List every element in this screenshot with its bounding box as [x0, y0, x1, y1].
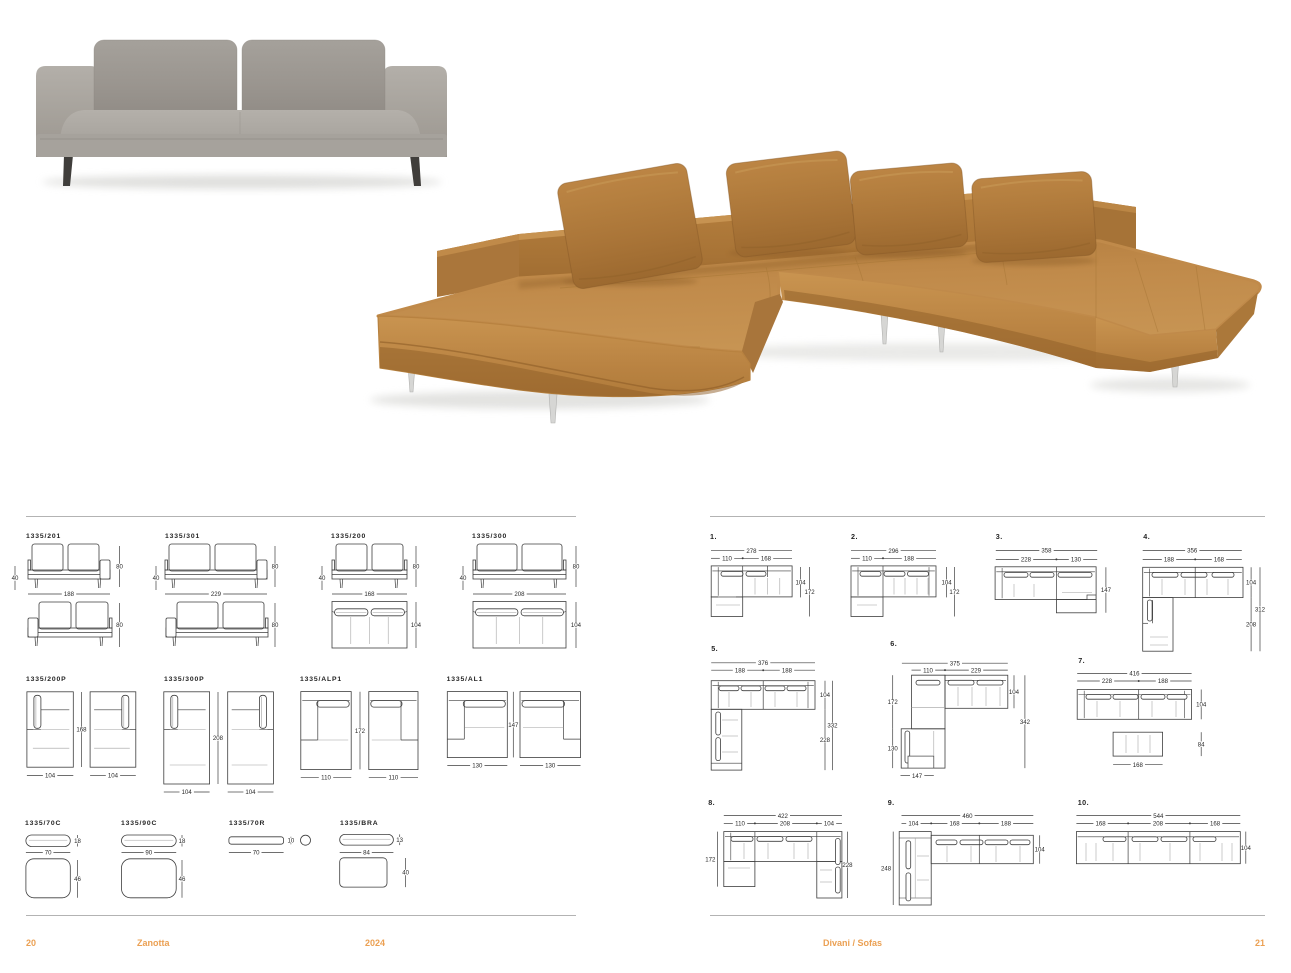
svg-text:147: 147: [912, 773, 923, 780]
svg-text:80: 80: [116, 564, 123, 571]
svg-text:168: 168: [364, 591, 375, 598]
svg-text:110: 110: [923, 667, 933, 674]
svg-text:130: 130: [472, 763, 483, 770]
svg-text:416: 416: [1129, 671, 1140, 678]
svg-text:168: 168: [1214, 557, 1225, 564]
svg-text:Zanotta: Zanotta: [137, 938, 170, 948]
svg-text:208: 208: [514, 591, 525, 598]
svg-text:1335/300P: 1335/300P: [164, 676, 205, 683]
svg-text:228: 228: [1021, 557, 1032, 564]
svg-text:80: 80: [272, 622, 279, 629]
svg-text:2.: 2.: [851, 532, 858, 541]
svg-text:104: 104: [908, 821, 919, 828]
svg-text:20: 20: [26, 938, 36, 948]
svg-text:147: 147: [1101, 587, 1112, 594]
svg-text:40: 40: [12, 575, 19, 582]
svg-text:208: 208: [780, 821, 791, 828]
svg-text:104: 104: [108, 773, 119, 780]
svg-text:188: 188: [64, 591, 75, 598]
svg-text:84: 84: [1198, 741, 1205, 748]
svg-text:1335/300: 1335/300: [472, 533, 507, 540]
svg-text:228: 228: [820, 737, 831, 744]
svg-text:6.: 6.: [890, 639, 897, 648]
svg-text:168: 168: [950, 821, 961, 828]
svg-text:1335/301: 1335/301: [165, 533, 200, 540]
svg-text:188: 188: [735, 667, 746, 674]
svg-text:168: 168: [761, 556, 772, 563]
svg-text:312: 312: [1255, 606, 1266, 613]
svg-text:168: 168: [1133, 762, 1144, 769]
svg-text:130: 130: [888, 746, 899, 753]
svg-text:40: 40: [402, 870, 409, 877]
svg-text:375: 375: [950, 660, 961, 667]
svg-text:110: 110: [321, 775, 331, 782]
svg-text:1335/90C: 1335/90C: [121, 820, 157, 827]
svg-text:40: 40: [460, 575, 467, 582]
svg-text:208: 208: [1153, 821, 1164, 828]
svg-text:18: 18: [179, 838, 186, 845]
svg-text:168: 168: [1096, 821, 1107, 828]
svg-text:80: 80: [413, 564, 420, 571]
svg-text:46: 46: [179, 876, 186, 883]
svg-text:1335/ALP1: 1335/ALP1: [300, 676, 342, 683]
svg-text:278: 278: [746, 548, 757, 555]
svg-text:40: 40: [153, 575, 160, 582]
svg-text:1335/201: 1335/201: [26, 533, 61, 540]
svg-text:228: 228: [842, 862, 853, 869]
svg-text:208: 208: [1246, 622, 1257, 629]
svg-text:40: 40: [319, 575, 326, 582]
svg-text:104: 104: [571, 622, 582, 629]
svg-text:342: 342: [1020, 719, 1031, 726]
svg-text:104: 104: [796, 579, 807, 586]
svg-text:229: 229: [211, 591, 222, 598]
svg-text:168: 168: [76, 727, 87, 734]
svg-text:10: 10: [288, 838, 295, 845]
svg-text:228: 228: [1102, 678, 1113, 685]
svg-text:104: 104: [411, 622, 422, 629]
svg-text:296: 296: [888, 548, 899, 555]
svg-text:104: 104: [1196, 702, 1207, 709]
svg-text:110: 110: [862, 556, 872, 563]
svg-text:172: 172: [949, 589, 960, 596]
svg-text:188: 188: [782, 667, 793, 674]
svg-text:104: 104: [1009, 689, 1020, 696]
svg-text:1.: 1.: [710, 532, 717, 541]
svg-text:168: 168: [1210, 821, 1221, 828]
svg-text:9.: 9.: [888, 798, 895, 807]
svg-text:130: 130: [1071, 557, 1082, 564]
svg-text:104: 104: [182, 789, 193, 796]
svg-text:21: 21: [1255, 938, 1265, 948]
svg-text:172: 172: [355, 728, 366, 735]
svg-text:376: 376: [758, 660, 769, 667]
svg-text:70: 70: [45, 850, 52, 857]
svg-text:422: 422: [778, 813, 789, 820]
svg-text:147: 147: [508, 722, 519, 729]
svg-text:18: 18: [74, 838, 81, 845]
svg-text:Divani / Sofas: Divani / Sofas: [823, 938, 882, 948]
svg-text:104: 104: [820, 692, 831, 699]
svg-text:80: 80: [116, 622, 123, 629]
svg-text:188: 188: [904, 556, 915, 563]
svg-text:2024: 2024: [365, 938, 385, 948]
svg-text:172: 172: [705, 856, 716, 863]
svg-text:104: 104: [1035, 847, 1046, 854]
svg-text:356: 356: [1187, 548, 1198, 555]
svg-text:332: 332: [827, 723, 838, 730]
svg-text:104: 104: [45, 773, 56, 780]
svg-text:172: 172: [888, 699, 899, 706]
svg-text:229: 229: [971, 667, 982, 674]
svg-text:1335/AL1: 1335/AL1: [447, 676, 484, 683]
svg-text:104: 104: [1246, 580, 1257, 587]
svg-text:90: 90: [145, 850, 152, 857]
svg-text:104: 104: [1241, 845, 1252, 852]
svg-text:104: 104: [824, 821, 835, 828]
svg-text:3.: 3.: [996, 532, 1003, 541]
svg-text:172: 172: [805, 589, 816, 596]
svg-text:188: 188: [1158, 678, 1169, 685]
svg-text:10.: 10.: [1078, 798, 1090, 807]
svg-text:80: 80: [272, 564, 279, 571]
svg-text:84: 84: [363, 850, 370, 857]
svg-text:104: 104: [245, 789, 256, 796]
svg-text:130: 130: [545, 763, 556, 770]
svg-text:4.: 4.: [1143, 532, 1150, 541]
svg-text:110: 110: [735, 821, 745, 828]
svg-text:8.: 8.: [708, 798, 715, 807]
svg-text:208: 208: [213, 735, 224, 742]
svg-text:460: 460: [962, 813, 973, 820]
svg-text:358: 358: [1041, 548, 1052, 555]
svg-text:1335/70R: 1335/70R: [229, 820, 265, 827]
svg-text:1335/200: 1335/200: [331, 533, 366, 540]
svg-text:104: 104: [942, 579, 953, 586]
svg-text:1335/BRA: 1335/BRA: [340, 820, 379, 827]
svg-text:110: 110: [389, 775, 399, 782]
svg-text:46: 46: [74, 876, 81, 883]
svg-text:7.: 7.: [1078, 656, 1085, 665]
svg-text:70: 70: [253, 850, 260, 857]
svg-text:188: 188: [1164, 557, 1175, 564]
svg-text:13: 13: [396, 837, 403, 844]
svg-text:544: 544: [1153, 813, 1164, 820]
svg-text:5.: 5.: [711, 644, 718, 653]
svg-text:188: 188: [1001, 821, 1012, 828]
svg-text:1335/200P: 1335/200P: [26, 676, 67, 683]
svg-text:1335/70C: 1335/70C: [25, 820, 61, 827]
svg-text:248: 248: [881, 866, 892, 873]
svg-text:80: 80: [573, 564, 580, 571]
svg-text:110: 110: [722, 556, 732, 563]
